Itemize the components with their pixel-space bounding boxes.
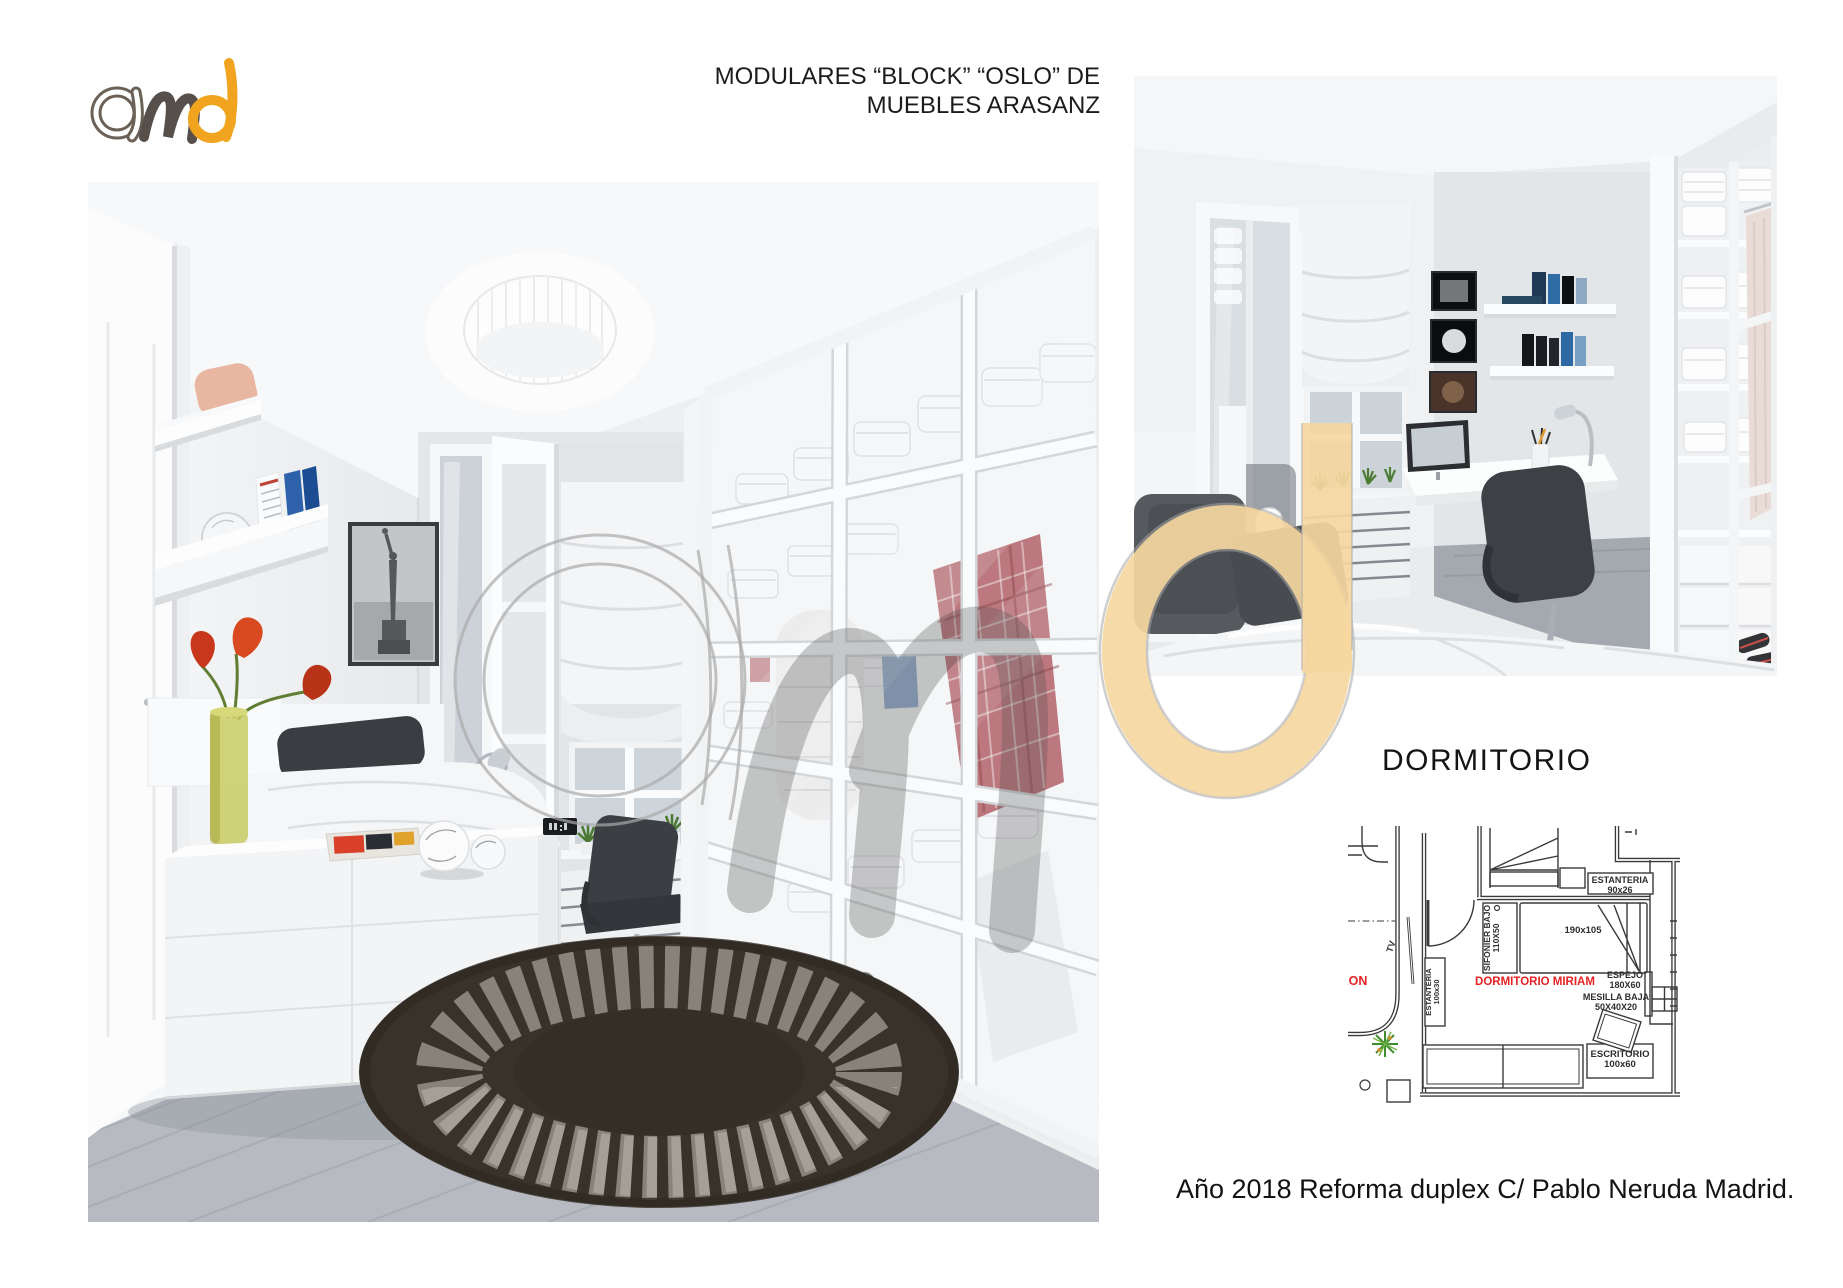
statue-poster [350, 524, 437, 664]
title-line2: MUEBLES ARASANZ [660, 91, 1100, 120]
label-mesilla: MESILLA BAJA 50X40X20 [1582, 993, 1650, 1012]
label-escritorio: ESCRITORIO 100x60 [1588, 1050, 1652, 1071]
label-espejo: ESPEJO 180X60 [1598, 971, 1652, 990]
pen-cup [1532, 444, 1549, 469]
closet [1650, 136, 1777, 676]
plant-symbol [1372, 1031, 1398, 1057]
amd-logo-graphic [86, 56, 266, 148]
label-bed-size: 190x105 [1528, 926, 1638, 936]
decor-sphere [471, 835, 505, 869]
label-room: DORMITORIO MIRIAM [1466, 976, 1604, 988]
round-rug [359, 937, 959, 1207]
digital-clock [543, 818, 577, 835]
label-estanteria-top: ESTANTERIA 90x26 [1588, 876, 1652, 895]
picture-frames [1430, 272, 1476, 412]
render-bedroom-wardrobe [88, 182, 1099, 1222]
decor-sphere [419, 821, 469, 871]
label-salon: LON [1348, 975, 1367, 989]
portfolio-page: MODULARES “BLOCK” “OSLO” DE MUEBLES ARAS… [0, 0, 1843, 1288]
floor-plan: ESTANTERIA 90x26 SIFONIER BAJO 110X50 19… [1348, 826, 1688, 1112]
dark-pillow2 [1227, 520, 1350, 628]
render-bedroom-desk [1134, 76, 1777, 676]
door-arc [1428, 900, 1474, 946]
moon-picture [1442, 329, 1466, 353]
bed-outline [1520, 903, 1647, 973]
page-title: MODULARES “BLOCK” “OSLO” DE MUEBLES ARAS… [660, 62, 1100, 120]
title-line1: MODULARES “BLOCK” “OSLO” DE [660, 62, 1100, 91]
label-estanteria-left: ESTANTERIA 100x30 [1425, 958, 1445, 1026]
caption: Año 2018 Reforma duplex C/ Pablo Neruda … [1176, 1174, 1794, 1205]
amd-logo [86, 56, 266, 148]
label-sifonier: SIFONIER BAJO 110X50 [1483, 903, 1517, 973]
upper-bed [1490, 828, 1558, 888]
section-heading: DORMITORIO [1382, 744, 1591, 778]
room2-window [1299, 204, 1411, 502]
ceiling-lamp [464, 274, 616, 386]
